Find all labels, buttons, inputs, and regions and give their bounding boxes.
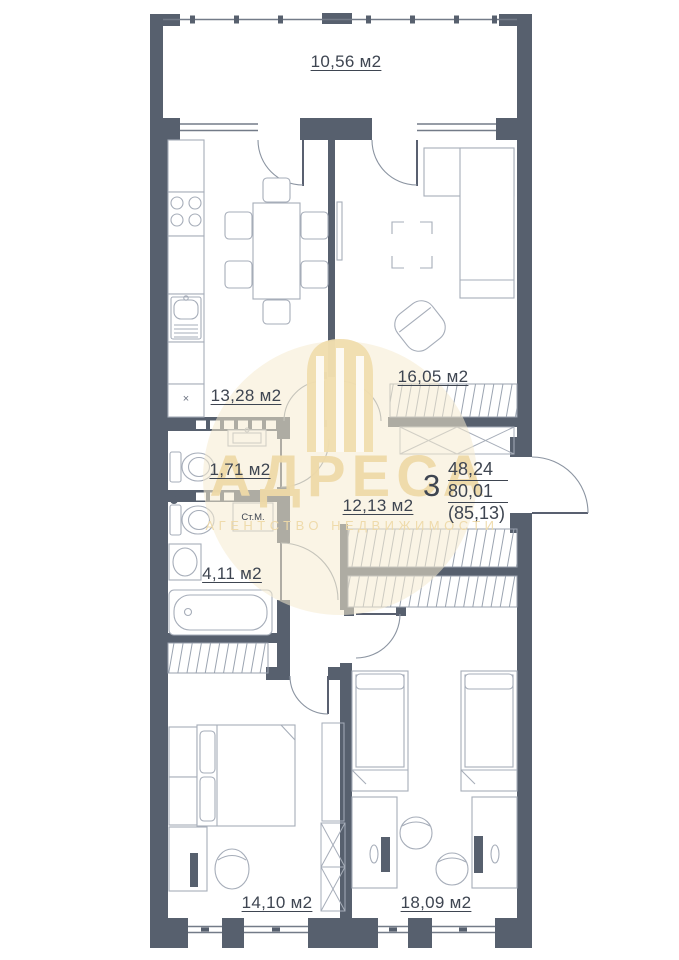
desk	[169, 827, 207, 891]
room-label-bedroom-left: 14,10 м2	[242, 893, 313, 913]
bath-sink-icon	[169, 544, 201, 580]
rooms-count: 3	[423, 468, 440, 504]
living-room-furniture	[337, 148, 514, 357]
tv-stand	[337, 202, 342, 260]
pillow	[465, 674, 513, 689]
living-area: 48,24	[448, 459, 508, 481]
chair	[263, 178, 290, 202]
kitchen-sink-icon	[168, 294, 204, 342]
floorplan-drawing	[0, 0, 679, 960]
chair	[225, 261, 252, 288]
pillow	[356, 674, 404, 689]
pillow	[200, 777, 215, 821]
monitor-icon	[190, 853, 198, 887]
total-area: (85,13)	[448, 503, 508, 524]
bedroom-right-furniture	[352, 671, 517, 888]
toilet-icon	[170, 452, 181, 482]
kitchen-marker: ×	[179, 392, 193, 406]
dining-table	[253, 203, 300, 299]
pillow	[200, 731, 215, 773]
armchair	[389, 295, 451, 357]
coffee-table	[392, 222, 432, 268]
chair	[301, 212, 328, 239]
monitor-icon	[381, 837, 390, 872]
nightstand	[169, 727, 197, 777]
vent-dot	[170, 496, 178, 504]
monitor-icon	[474, 836, 483, 873]
washing-machine-label: Ст.М.	[233, 503, 273, 531]
room-label-hallway: 12,13 м2	[343, 496, 414, 516]
room-label-kitchen: 13,28 м2	[211, 386, 282, 406]
chair	[263, 300, 290, 324]
nightstand	[169, 777, 197, 825]
toilet-icon	[170, 505, 181, 535]
chair	[301, 261, 328, 288]
bedroom-left-furniture	[169, 725, 295, 891]
room-label-balcony: 10,56 м2	[311, 52, 382, 72]
room-label-bedroom-right: 18,09 м2	[401, 893, 472, 913]
chair	[225, 212, 252, 239]
room-label-bathroom: 4,11 м2	[202, 564, 262, 584]
desk	[352, 797, 397, 888]
floorplan-page: АДРЕСА АГЕНТСТВО НЕДВИЖИМОСТИ 10,56 м2 1…	[0, 0, 679, 960]
room-label-wc: 1,71 м2	[209, 460, 270, 480]
room-label-living-room: 16,05 м2	[398, 367, 469, 387]
apartment-area: 80,01	[448, 481, 508, 503]
area-summary: 48,24 80,01 (85,13)	[448, 459, 508, 524]
